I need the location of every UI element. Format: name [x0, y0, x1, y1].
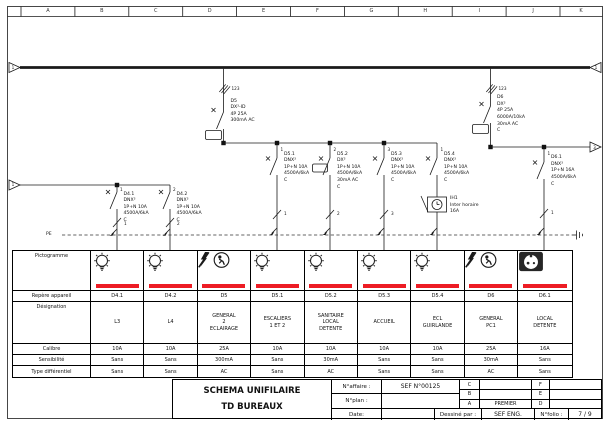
lamp-icon — [91, 251, 113, 275]
grid-letter: F — [308, 8, 328, 14]
sensibilite-cell: 300mA — [198, 355, 251, 366]
link-marker-mid-left: 1 — [9, 182, 17, 187]
red-underline — [149, 284, 192, 288]
breaker-label-d6: D6 DX³ 4P 25A 6000A/10kA 30mA AC C — [497, 95, 525, 135]
branch-d5-3 — [373, 141, 388, 250]
red-underline — [96, 284, 139, 288]
calibre-cell: 10A — [144, 344, 197, 355]
sensibilite-cell: Sans — [518, 355, 571, 366]
grid-letter: C — [146, 8, 166, 14]
dessine-par-label: Dessiné par : — [434, 408, 481, 420]
breaker-label-d5-1: D5.1 DNX³ 1P+N 10A 4500A/6kA C — [284, 152, 309, 185]
type-diff-cell: Sans — [518, 366, 571, 377]
drawing-title: SCHEMA UNIFILAIRE TD BUREAUX — [173, 380, 331, 418]
pictogram-cell — [91, 251, 144, 291]
type-diff-cell: Sans — [358, 366, 411, 377]
branch-d5-1 — [266, 141, 281, 250]
grid-letter: D — [200, 8, 220, 14]
type-diff-cell: AC — [305, 366, 358, 377]
red-underline — [363, 284, 406, 288]
breaker-label-d5-4: D5.4 DNX³ 1P+N 10A 4500A/6kA C — [444, 152, 469, 185]
pe-line — [62, 231, 583, 240]
type-diff-cell: Sans — [411, 366, 464, 377]
feeder-d6 — [473, 69, 602, 152]
breaker-label-d4-2: D4.2 DNX³ 1P+N 10A 4500A/6kA C — [177, 192, 202, 225]
calibre-cell: 10A — [91, 344, 144, 355]
feeder-d4 — [9, 180, 170, 190]
timer-label-ih1: IH1 Inter horaire 16A — [450, 196, 479, 216]
link-marker-top-left: 1 — [9, 65, 17, 70]
sensibilite-cell: Sans — [251, 355, 304, 366]
row-label-calibre: Calibre — [13, 344, 91, 355]
rev-letter: B — [459, 389, 479, 398]
date-label: Date: — [331, 408, 381, 420]
phase-label-d6: 123 — [499, 86, 507, 91]
sensibilite-cell: 30mA — [305, 355, 358, 366]
lamp-icon — [144, 251, 166, 275]
grid-letter: B — [92, 8, 112, 14]
red-underline — [309, 284, 352, 288]
rev-letter: C — [459, 380, 479, 389]
branch-d5-4 — [421, 143, 447, 250]
rev-value — [549, 389, 601, 398]
branch-d4-2 — [159, 185, 174, 250]
designation-cell: ESCALIERS 1 ET 2 — [251, 302, 304, 344]
calibre-cell: 25A — [198, 344, 251, 355]
type-diff-cell: AC — [465, 366, 518, 377]
circuit-number-d4-1: 1 — [124, 221, 132, 226]
affaire-value: SEF N°00125 — [381, 380, 459, 393]
calibre-cell: 10A — [411, 344, 464, 355]
designation-cell: SANITAIRE LOCAL DETENTE — [305, 302, 358, 344]
lamp-icon — [411, 251, 433, 275]
pictogram-cell — [358, 251, 411, 291]
plan-label: N°plan : — [331, 393, 381, 408]
title-line-1: SCHEMA UNIFILAIRE — [204, 386, 301, 396]
grid-letter: I — [469, 8, 489, 14]
designation-cell: ECL GUIRLANDE — [411, 302, 464, 344]
date-value — [381, 408, 434, 420]
repere-cell: D6 — [465, 291, 518, 302]
row-label-designation: Désignation — [13, 302, 91, 344]
red-underline — [523, 284, 567, 288]
red-underline — [416, 284, 459, 288]
rev-value — [479, 389, 531, 398]
type-diff-cell: AC — [198, 366, 251, 377]
row-label-pictogramme: Pictogramme — [13, 251, 91, 291]
grid-letter: K — [571, 8, 591, 14]
breaker-label-d6-1: D6.1 DNX³ 1P+N 16A 4500A/6kA C — [551, 155, 576, 188]
grid-letter: J — [523, 8, 543, 14]
busbar — [9, 63, 601, 73]
plan-value — [381, 393, 459, 408]
pictogram-cell — [198, 251, 251, 291]
pictogram-cell — [518, 251, 571, 291]
breaker-label-d5: D5 DX³-ID 4P 25A 300mA AC — [231, 99, 255, 126]
designation-cell: ACCUEIL — [358, 302, 411, 344]
rev-letter: A — [459, 399, 479, 408]
red-underline — [256, 284, 299, 288]
circuit-number-d5-2: 2 — [337, 211, 345, 216]
repere-cell: D5.1 — [251, 291, 304, 302]
phase-label-d5: 123 — [232, 86, 240, 91]
branch-d6-1 — [533, 145, 548, 250]
designation-cell: GENERAL 2 ECLAIRAGE — [198, 302, 251, 344]
designation-cell: LOCAL DETENTE — [518, 302, 571, 344]
affaire-label: N°affaire : — [331, 380, 381, 393]
type-diff-cell: Sans — [144, 366, 197, 377]
rev-value: PREMIER — [479, 399, 531, 408]
drawing-sheet: A B C D E F G H I J K 1 1 1 3 123 123 PE… — [0, 0, 610, 427]
sensibilite-cell: Sans — [411, 355, 464, 366]
designation-cell: L4 — [144, 302, 197, 344]
grid-letter: H — [415, 8, 435, 14]
sensibilite-cell: Sans — [358, 355, 411, 366]
lamp-icon — [251, 251, 273, 275]
repere-cell: D5.2 — [305, 291, 358, 302]
breaker-label-d5-3: D5.3 DNX³ 1P+N 10A 4500A/6kA C — [391, 152, 416, 185]
title-block: SCHEMA UNIFILAIRE TD BUREAUX N°affaire :… — [172, 379, 602, 419]
pictogram-cell — [465, 251, 518, 291]
circuit-table: Pictogramme Repère appareil D4.1 D4.2 D5… — [12, 250, 573, 378]
pictogram-cell — [251, 251, 304, 291]
repere-cell: D5.3 — [358, 291, 411, 302]
pe-label: PE — [46, 232, 52, 239]
flash-person-icon — [198, 251, 230, 269]
calibre-cell: 10A — [251, 344, 304, 355]
row-label-sensibilite: Sensibilité — [13, 355, 91, 366]
folio-label: N°folio : — [534, 408, 568, 420]
type-diff-cell: Sans — [91, 366, 144, 377]
calibre-cell: 25A — [465, 344, 518, 355]
calibre-cell: 16A — [518, 344, 571, 355]
red-underline — [469, 284, 512, 288]
breaker-label-d4-1: D4.1 DNX³ 1P+N 10A 4500A/6kA C — [124, 192, 149, 225]
repere-cell: D4.2 — [144, 291, 197, 302]
grid-letter: G — [361, 8, 381, 14]
designation-cell: GENERAL PC1 — [465, 302, 518, 344]
type-diff-cell: Sans — [251, 366, 304, 377]
folio-value: 7 / 9 — [568, 408, 601, 420]
title-line-2: TD BUREAUX — [221, 402, 282, 412]
sensibilite-cell: Sans — [144, 355, 197, 366]
pictogram-cell — [411, 251, 464, 291]
lamp-icon — [305, 251, 327, 275]
link-marker-top-right: 1 — [592, 65, 600, 70]
circuit-number-d6-1: 1 — [551, 210, 559, 215]
rev-letter: F — [531, 380, 549, 389]
lamp-icon — [358, 251, 380, 275]
grid-letter: E — [254, 8, 274, 14]
row-label-repere: Repère appareil — [13, 291, 91, 302]
repere-cell: D5.4 — [411, 291, 464, 302]
rev-letter: E — [531, 389, 549, 398]
sensibilite-cell: Sans — [91, 355, 144, 366]
sensibilite-cell: 30mA — [465, 355, 518, 366]
repere-cell: D4.1 — [91, 291, 144, 302]
rev-value — [549, 399, 601, 408]
circuit-number-d5-1: 1 — [284, 211, 292, 216]
grid-letter: A — [38, 8, 58, 14]
link-marker-mid-right: 3 — [591, 145, 599, 150]
pictogram-cell — [305, 251, 358, 291]
row-label-type-differentiel: Type différentiel — [13, 366, 91, 377]
dessine-par-value: SEF ENG. — [481, 408, 534, 420]
repere-cell: D5 — [198, 291, 251, 302]
circuit-number-d5-3: 3 — [391, 211, 399, 216]
pictogram-cell — [144, 251, 197, 291]
rev-letter: D — [531, 399, 549, 408]
flash-person-icon — [465, 251, 497, 269]
rev-value — [549, 380, 601, 389]
branch-d5-2 — [313, 141, 335, 250]
designation-cell: L3 — [91, 302, 144, 344]
breaker-label-d5-2: D5.2 DX³ 1P+N 10A 4500A/6kA 30mA AC C — [337, 152, 362, 192]
socket-icon — [518, 251, 544, 273]
repere-cell: D6.1 — [518, 291, 571, 302]
calibre-cell: 10A — [305, 344, 358, 355]
red-underline — [202, 284, 245, 288]
branch-d4-1 — [106, 185, 121, 250]
circuit-number-d4-2: 2 — [177, 221, 185, 226]
calibre-cell: 10A — [358, 344, 411, 355]
rev-value — [479, 380, 531, 389]
